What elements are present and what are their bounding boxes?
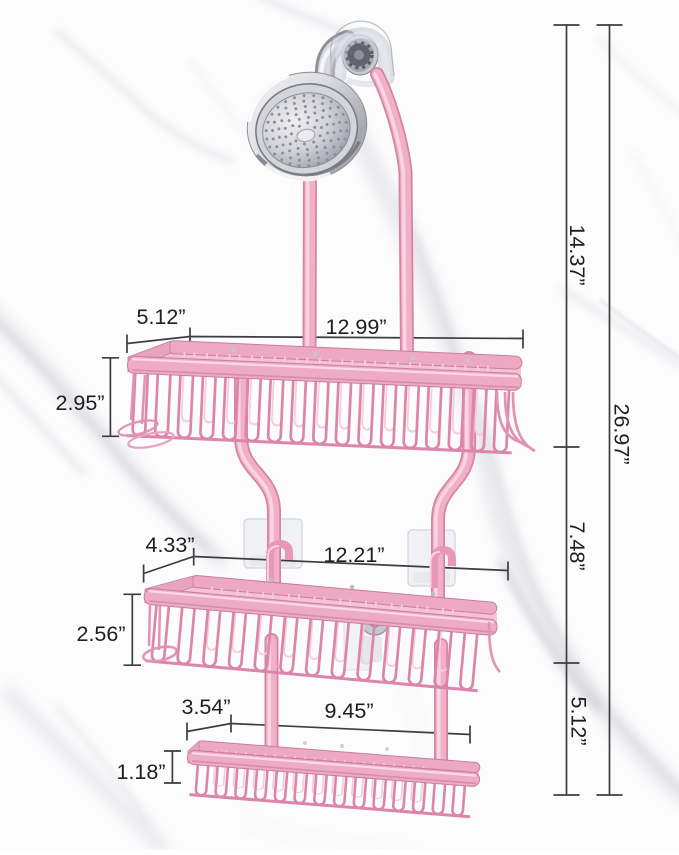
svg-text:4.33”: 4.33” <box>145 533 194 557</box>
svg-text:3.54”: 3.54” <box>181 695 230 719</box>
svg-text:26.97”: 26.97” <box>610 404 634 465</box>
svg-text:5.12”: 5.12” <box>567 696 591 745</box>
svg-text:5.12”: 5.12” <box>136 305 185 329</box>
svg-text:1.18”: 1.18” <box>116 760 165 784</box>
svg-text:2.56”: 2.56” <box>76 622 125 646</box>
svg-text:14.37”: 14.37” <box>565 225 589 286</box>
svg-text:9.45”: 9.45” <box>324 699 373 723</box>
svg-text:2.95”: 2.95” <box>55 391 104 415</box>
svg-text:7.48”: 7.48” <box>565 521 589 570</box>
svg-text:12.21”: 12.21” <box>324 543 385 567</box>
svg-text:12.99”: 12.99” <box>326 315 387 339</box>
